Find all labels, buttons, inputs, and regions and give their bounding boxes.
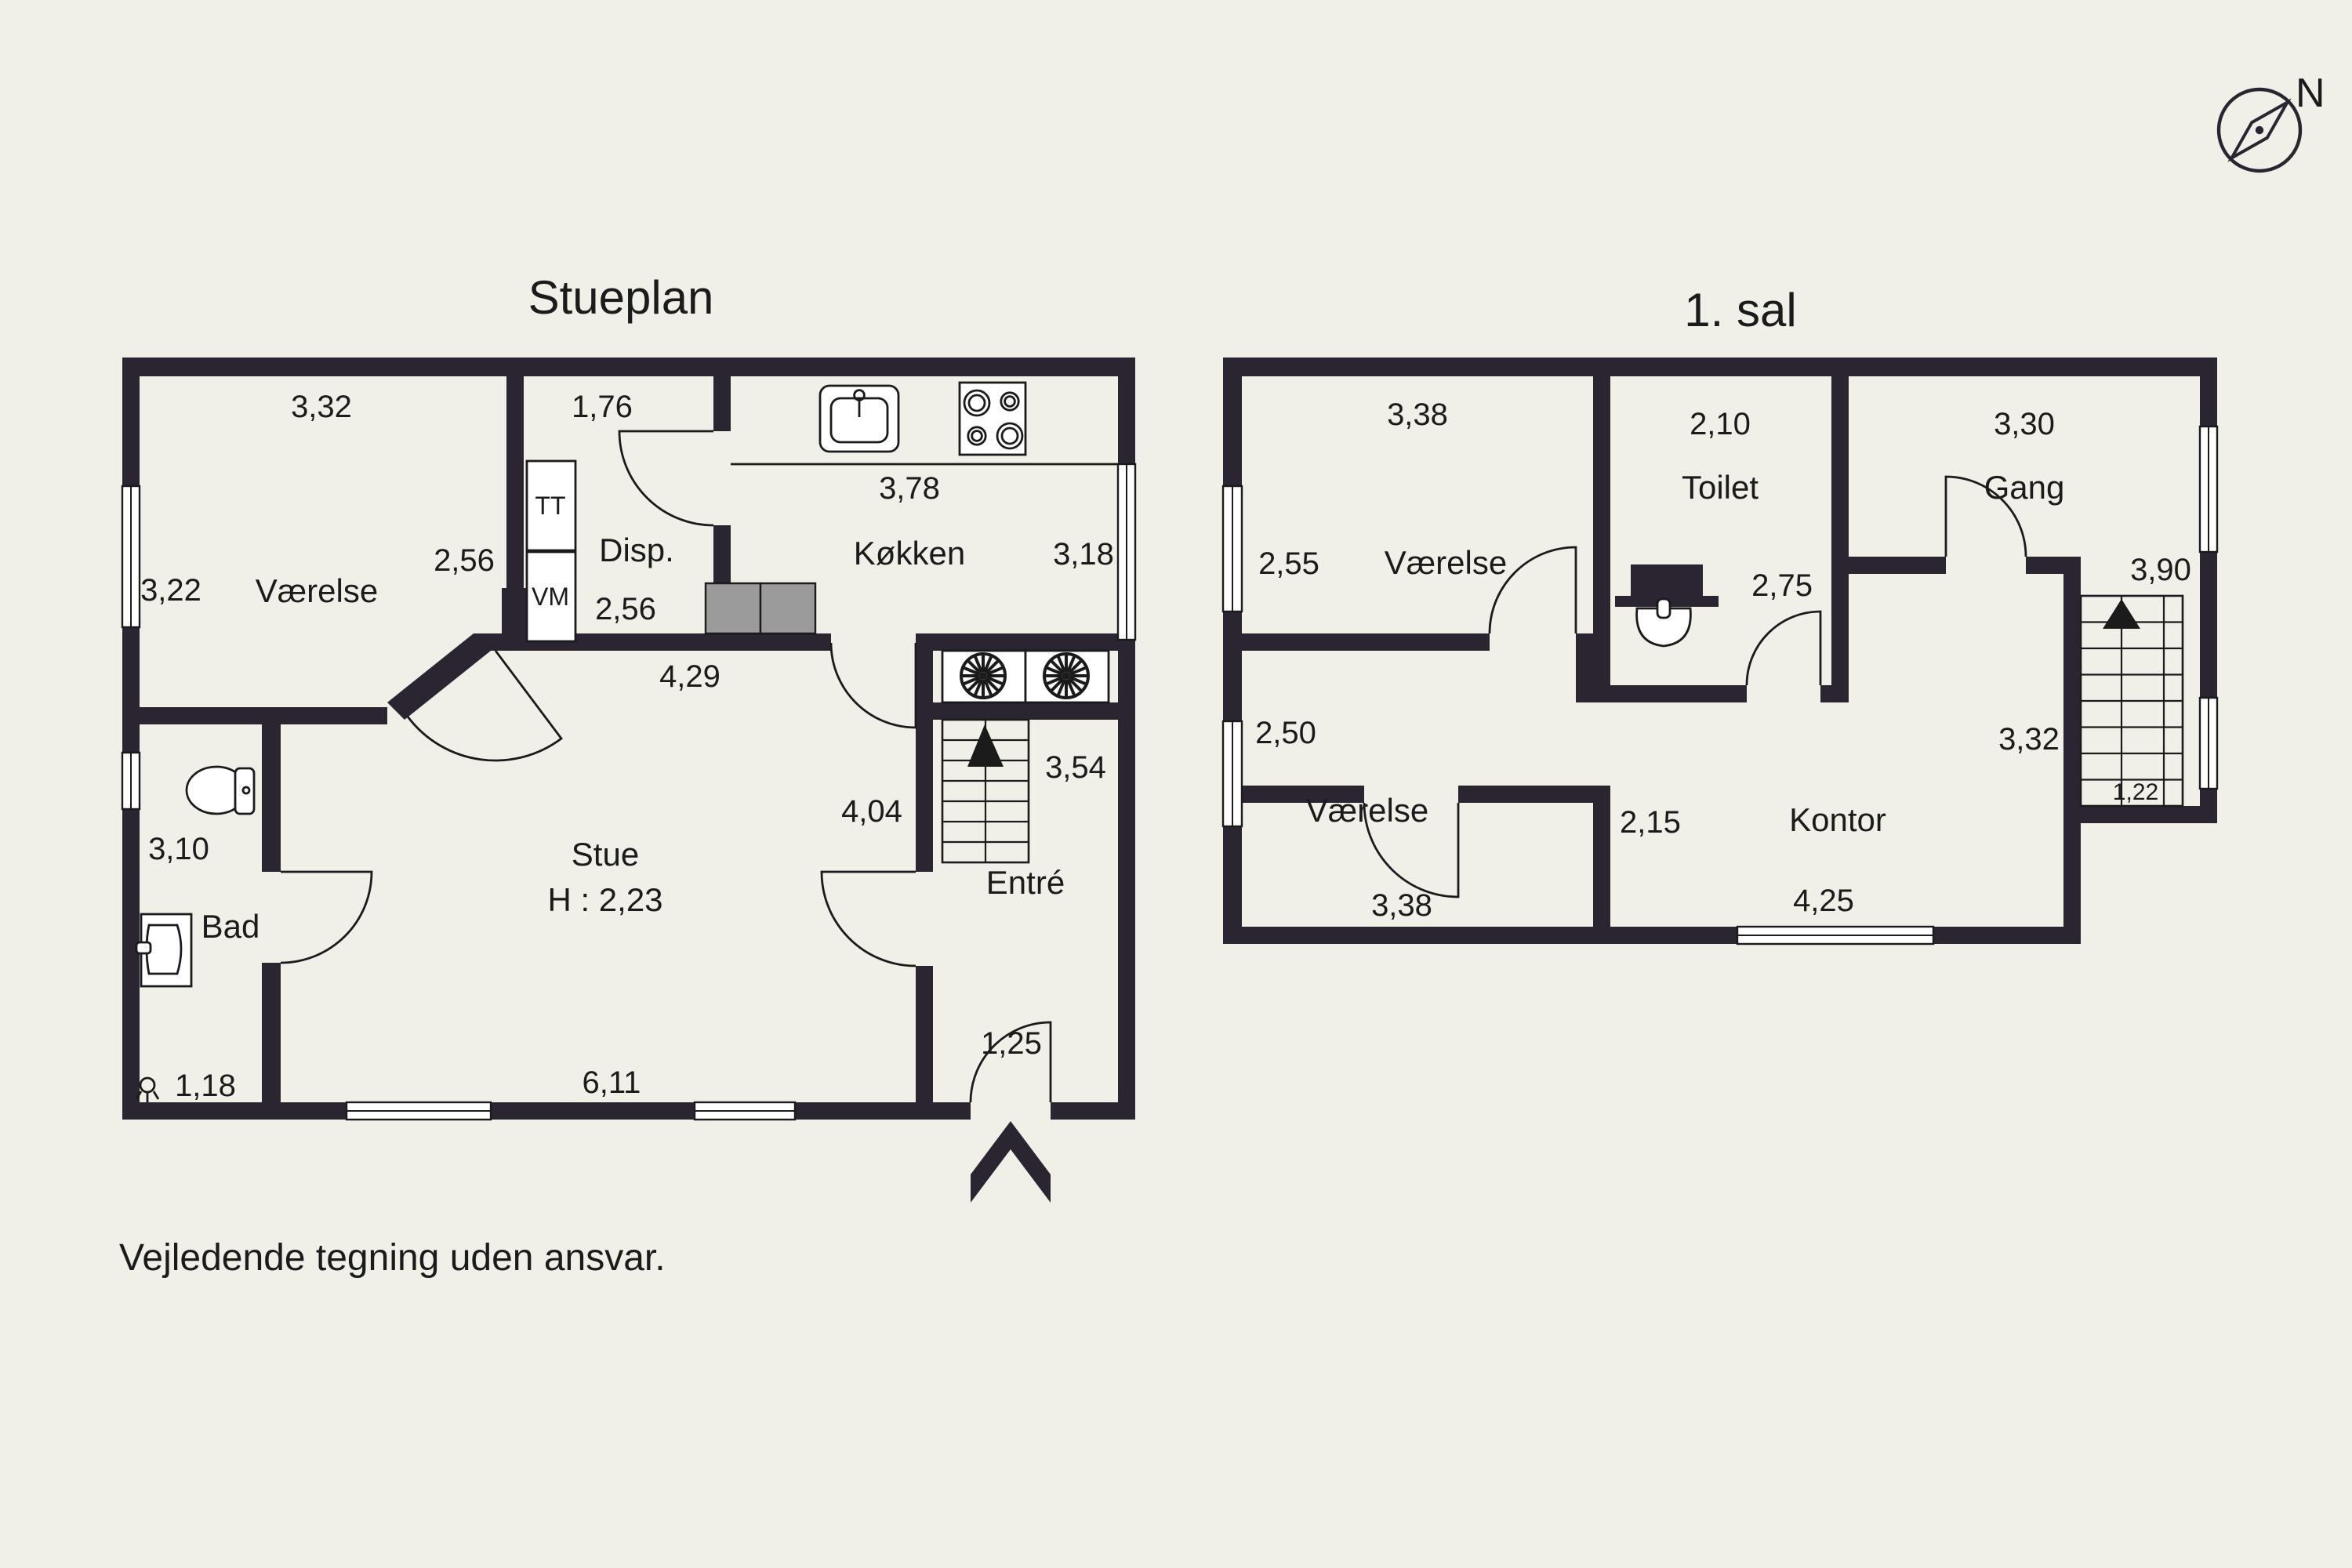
dim-vaerelse-top-left: 2,55 bbox=[1258, 546, 1319, 581]
kitchen-furniture-left bbox=[706, 583, 760, 633]
ground-floor-title: Stueplan bbox=[528, 271, 714, 324]
dim-vaerelse-right: 2,56 bbox=[434, 543, 495, 578]
room-label-kontor: Kontor bbox=[1789, 801, 1886, 838]
dim-stairs-top: 3,90 bbox=[2130, 553, 2191, 587]
dim-vaerelse-bottom-width: 3,38 bbox=[1371, 888, 1432, 923]
room-label-vaerelse: Værelse bbox=[256, 572, 378, 609]
dim-vaerelse-bottom-left: 2,50 bbox=[1255, 716, 1316, 750]
compass-north-label: N bbox=[2296, 71, 2325, 116]
dim-entry-door: 1,25 bbox=[981, 1026, 1042, 1061]
kontor-window bbox=[1737, 927, 1933, 944]
stove-icon bbox=[960, 383, 1025, 455]
floorplan-drawing: Stueplan 1. sal N bbox=[0, 0, 2352, 1568]
room-label-toilet: Toilet bbox=[1682, 469, 1759, 506]
koekken-window bbox=[1118, 464, 1135, 640]
gang-window bbox=[2200, 426, 2217, 552]
dim-disp-width: 1,76 bbox=[572, 390, 633, 424]
stue-window-small bbox=[695, 1102, 795, 1120]
dim-vaerelse-depth: 3,22 bbox=[140, 573, 201, 608]
first-floor-title: 1. sal bbox=[1684, 284, 1796, 336]
dim-stairs-left: 3,32 bbox=[1998, 722, 2060, 757]
dim-koekken-width: 3,78 bbox=[879, 471, 940, 506]
kitchen-sink-icon bbox=[820, 386, 898, 452]
room-label-disp: Disp. bbox=[599, 532, 674, 568]
dim-disp-lower: 2,56 bbox=[595, 592, 656, 626]
floorplan-page: Stueplan 1. sal N bbox=[0, 0, 2352, 1568]
dim-toilet-width: 2,10 bbox=[1690, 407, 1751, 441]
dim-gang-width: 3,30 bbox=[1994, 407, 2055, 441]
dim-toilet-depth: 2,75 bbox=[1751, 568, 1813, 603]
dim-bad-depth: 3,10 bbox=[148, 832, 209, 866]
stue-window-large bbox=[347, 1102, 491, 1120]
bathroom-sink-icon bbox=[136, 914, 191, 986]
tumble-dryer-label: TT bbox=[535, 492, 565, 520]
dim-stue-width: 6,11 bbox=[583, 1065, 641, 1100]
dim-vaerelse-width: 3,32 bbox=[291, 390, 352, 424]
dim-stairs-width: 1,22 bbox=[2113, 779, 2158, 805]
room-label-entre: Entré bbox=[986, 864, 1065, 901]
room-label-gang: Gang bbox=[1984, 469, 2065, 506]
bad-window bbox=[122, 753, 140, 809]
label-stue-ceiling-height: H : 2,23 bbox=[547, 881, 662, 918]
page-background bbox=[0, 0, 2352, 1568]
vaerelse-window bbox=[122, 486, 140, 627]
dim-bad-width: 1,18 bbox=[175, 1069, 236, 1103]
dim-kontor-width: 4,25 bbox=[1793, 884, 1854, 918]
vaerelse-top-window bbox=[1223, 486, 1242, 612]
dim-stue-upper-width: 4,29 bbox=[659, 659, 720, 694]
vaerelse-bottom-window bbox=[1223, 721, 1242, 826]
dim-koekken-right: 3,18 bbox=[1053, 537, 1114, 572]
disclaimer-text: Vejledende tegning uden ansvar. bbox=[119, 1237, 666, 1279]
first-stairs-group bbox=[2081, 596, 2183, 806]
kitchen-furniture-right bbox=[760, 583, 815, 633]
room-label-vaerelse-top: Værelse bbox=[1385, 544, 1507, 581]
room-label-koekken: Køkken bbox=[854, 535, 965, 572]
dim-vaerelse-top-width: 3,38 bbox=[1387, 397, 1448, 432]
washing-machine-label: VM bbox=[532, 583, 569, 611]
toilet-counter bbox=[1631, 564, 1703, 599]
room-label-bad: Bad bbox=[201, 908, 260, 945]
disp-appliances: TT VM bbox=[527, 461, 575, 641]
dim-stue-depth: 4,04 bbox=[841, 794, 902, 829]
dim-kontor-left: 2,15 bbox=[1620, 805, 1681, 840]
room-label-stue: Stue bbox=[572, 836, 639, 873]
stairs-window bbox=[2200, 698, 2217, 789]
dim-entre-depth: 3,54 bbox=[1045, 750, 1106, 785]
fan-icon-right bbox=[1044, 654, 1088, 698]
room-label-vaerelse-bottom: Værelse bbox=[1306, 792, 1428, 829]
toilet-icon bbox=[187, 767, 254, 814]
fan-icon-left bbox=[961, 654, 1005, 698]
